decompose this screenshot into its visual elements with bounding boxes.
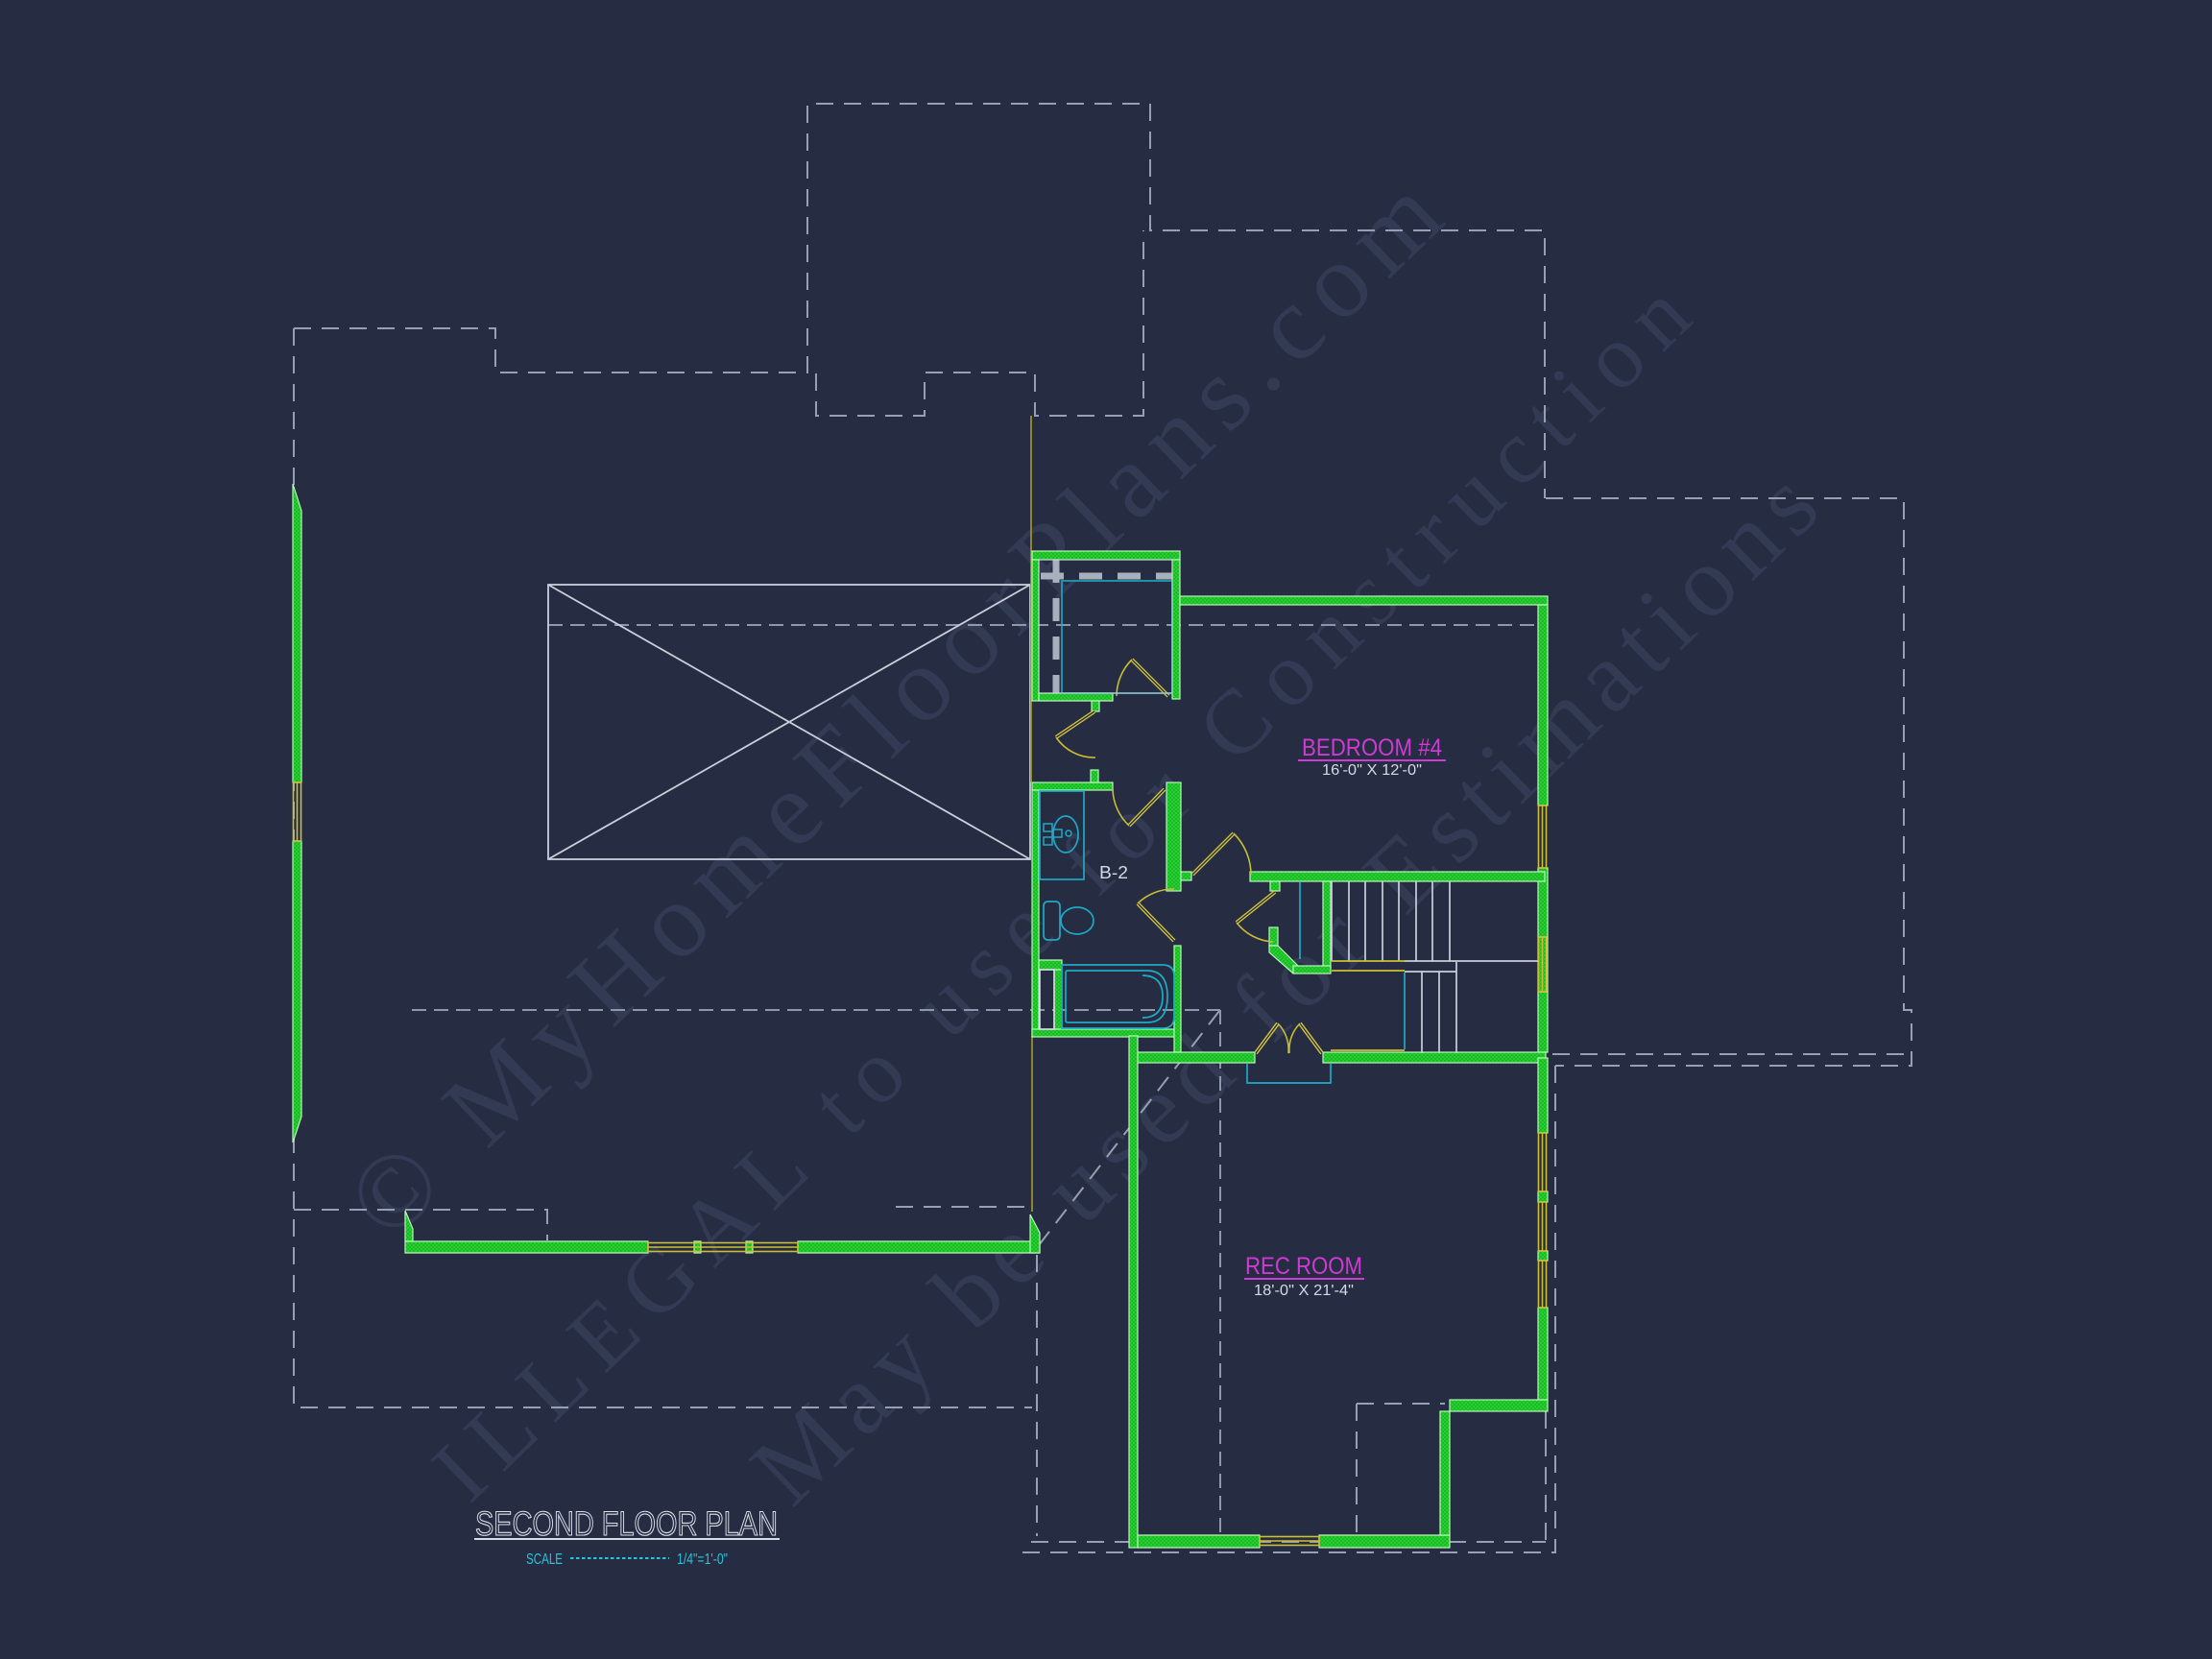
svg-text:BEDROOM #4: BEDROOM #4 [1302,734,1442,761]
svg-text:B-2: B-2 [1099,863,1128,882]
svg-text:REC ROOM: REC ROOM [1245,1253,1362,1280]
svg-text:SCALE: SCALE [526,1551,563,1568]
svg-text:1/4"=1'-0": 1/4"=1'-0" [677,1551,728,1568]
svg-text:16'-0" X 12'-0": 16'-0" X 12'-0" [1322,762,1422,779]
svg-text:18'-0" X 21'-4": 18'-0" X 21'-4" [1254,1283,1354,1299]
svg-text:SECOND FLOOR PLAN: SECOND FLOOR PLAN [475,1505,778,1543]
